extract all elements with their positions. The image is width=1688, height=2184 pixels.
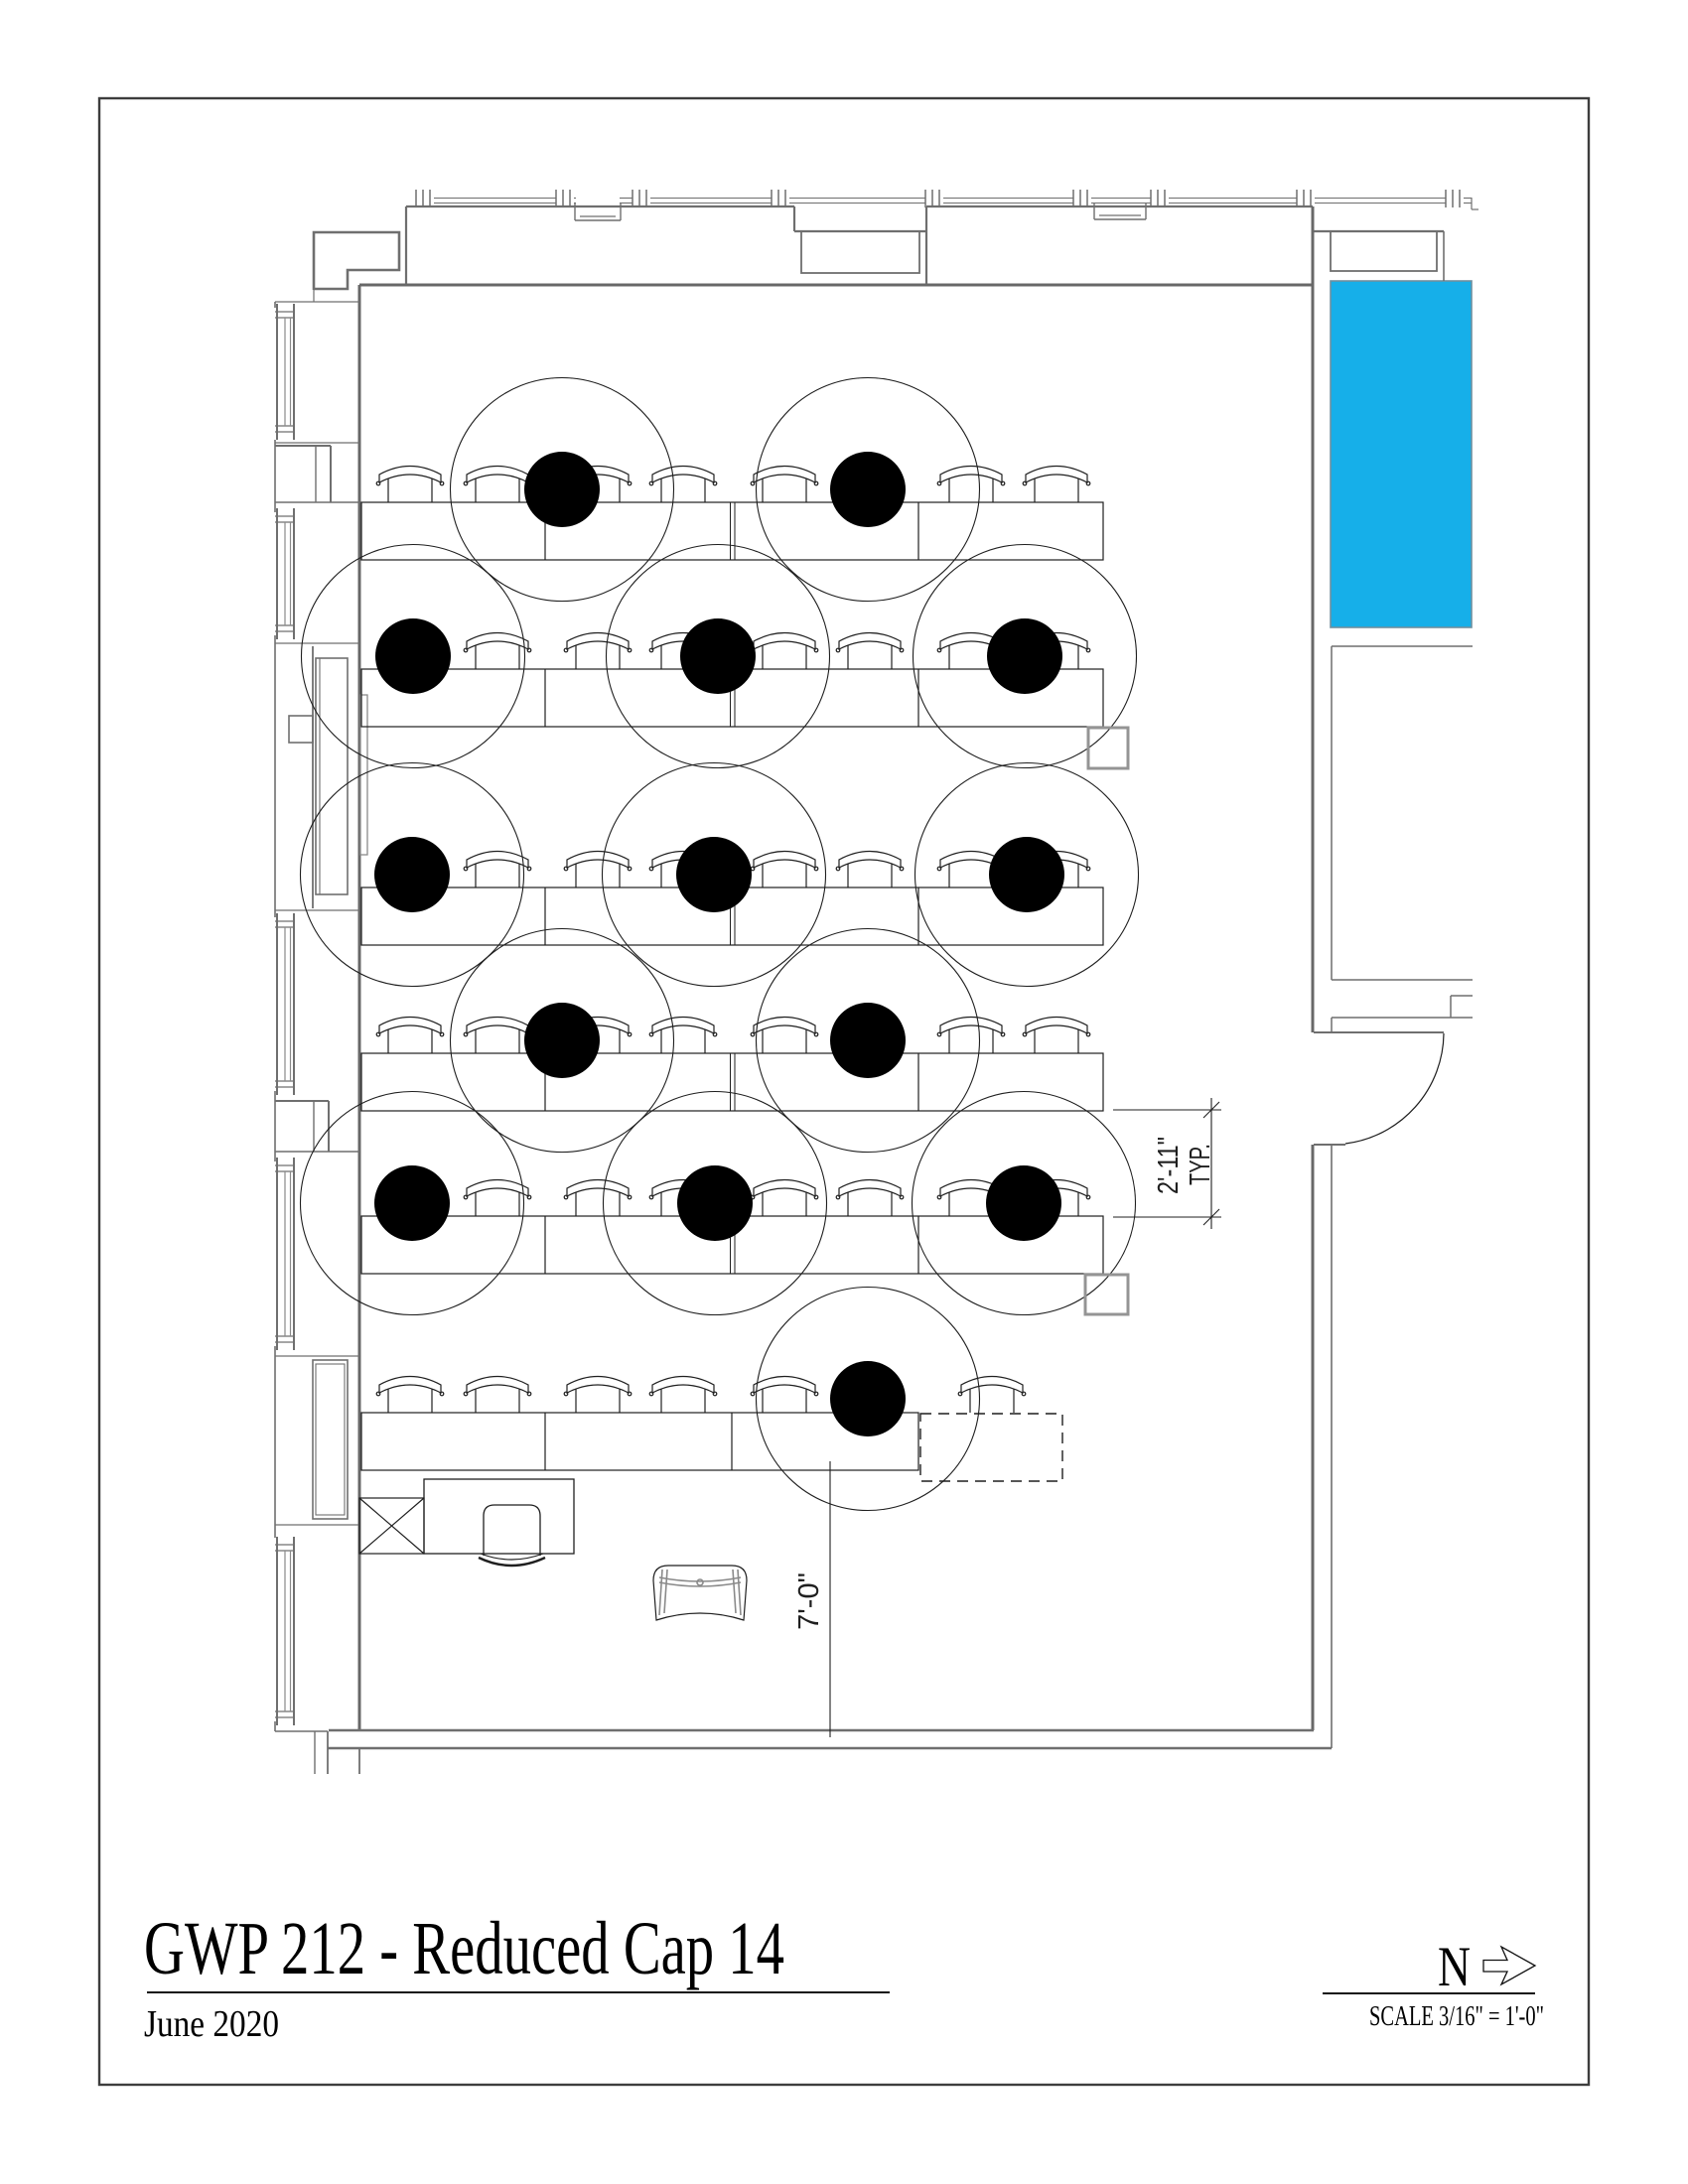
- svg-text:N: N: [1438, 1936, 1471, 1998]
- svg-text:TYP.: TYP.: [1185, 1144, 1216, 1185]
- svg-text:GWP 212 - Reduced Cap 14: GWP 212 - Reduced Cap 14: [144, 1907, 784, 1990]
- svg-text:2'-11": 2'-11": [1153, 1137, 1185, 1194]
- svg-text:SCALE 3/16" = 1'-0": SCALE 3/16" = 1'-0": [1369, 2001, 1544, 2032]
- svg-text:June 2020: June 2020: [144, 2003, 279, 2045]
- svg-text:7'-0": 7'-0": [793, 1572, 825, 1630]
